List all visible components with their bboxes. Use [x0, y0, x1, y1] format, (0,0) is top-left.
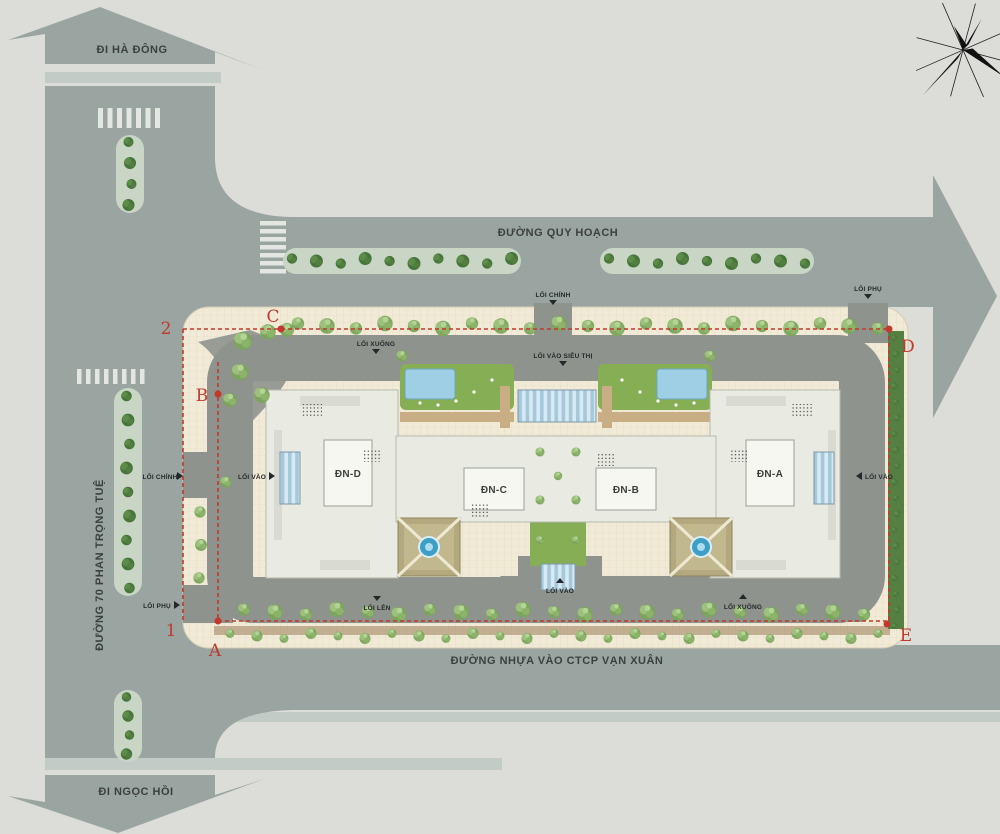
- tree-icon: [858, 608, 870, 620]
- tree-icon: [124, 439, 135, 450]
- tree-icon: [124, 583, 135, 594]
- tree-icon: [676, 252, 689, 265]
- canopy-east: [814, 452, 834, 504]
- tree-icon: [895, 367, 901, 373]
- tree-icon: [774, 255, 787, 268]
- marker-b: B: [196, 386, 209, 406]
- tree-icon: [319, 318, 334, 333]
- tree-icon: [627, 255, 640, 268]
- tree-icon: [226, 629, 235, 638]
- road-label-phan-trong-tue: ĐƯỜNG 70 PHAN TRỌNG TUỆ: [93, 479, 106, 651]
- tree-icon: [195, 539, 207, 551]
- tree-icon: [658, 632, 667, 641]
- driveway-entry-main-left: [183, 452, 237, 498]
- tree-icon: [121, 748, 132, 759]
- tree-icon: [305, 628, 316, 639]
- tree-icon: [667, 318, 682, 333]
- tree-icon: [238, 603, 250, 615]
- tree-icon: [408, 257, 421, 270]
- tree-icon: [893, 495, 899, 501]
- tree-icon: [893, 351, 900, 358]
- tree-icon: [582, 320, 594, 332]
- tree-icon: [895, 463, 901, 469]
- tree-icon: [825, 604, 840, 619]
- tree-icon: [800, 258, 810, 268]
- tree-icon: [456, 255, 469, 268]
- site-plan-canvas: ĐN-D ĐN-A ĐN-C ĐN-B: [0, 0, 1000, 834]
- tree-icon: [384, 256, 394, 266]
- label-dn-c: ĐN-C: [481, 485, 507, 496]
- tree-icon: [702, 256, 712, 266]
- tree-icon: [571, 447, 580, 456]
- tree-icon: [486, 608, 498, 620]
- tree-icon: [122, 558, 135, 571]
- direction-label-ngoc-hoi: ĐI NGỌC HỒI: [98, 785, 173, 798]
- tree-icon: [232, 364, 249, 381]
- tree-icon: [874, 629, 883, 638]
- tree-icon: [704, 350, 715, 361]
- marker-c: C: [266, 307, 279, 327]
- tree-icon: [336, 258, 346, 268]
- tree-icon: [725, 257, 738, 270]
- tree-icon: [893, 399, 899, 405]
- pool-right: [657, 369, 707, 399]
- tree-icon: [123, 137, 133, 147]
- tree-icon: [251, 630, 262, 641]
- tree-icon: [122, 710, 133, 721]
- tree-icon: [893, 543, 900, 550]
- tree-icon: [894, 415, 901, 422]
- tree-icon: [496, 632, 505, 641]
- tree-icon: [535, 447, 544, 456]
- tree-icon: [766, 634, 775, 643]
- tree-icon: [895, 559, 901, 565]
- tree-icon: [453, 604, 468, 619]
- tree-icon: [521, 633, 532, 644]
- tree-icon: [424, 603, 436, 615]
- tree-icon: [408, 320, 420, 332]
- tree-icon: [267, 604, 282, 619]
- tree-icon: [640, 317, 652, 329]
- tree-icon: [814, 317, 826, 329]
- tree-icon: [287, 253, 297, 263]
- tree-icon: [820, 632, 829, 641]
- tree-icon: [737, 630, 748, 641]
- marker-2: 2: [161, 319, 172, 339]
- tree-icon: [122, 414, 135, 427]
- marker-a: A: [208, 641, 222, 661]
- direction-label-ha-dong: ĐI HÀ ĐÔNG: [97, 43, 168, 56]
- label-dn-a: ĐN-A: [757, 469, 783, 480]
- tree-icon: [467, 628, 478, 639]
- tree-icon: [604, 634, 613, 643]
- tree-icon: [515, 602, 530, 617]
- tree-icon: [763, 607, 778, 622]
- marker-dot-e: [884, 621, 891, 628]
- road-label-quy-hoach: ĐƯỜNG QUY HOẠCH: [498, 226, 619, 239]
- marker-d: D: [901, 337, 915, 357]
- tree-icon: [535, 495, 544, 504]
- tree-icon: [123, 510, 136, 523]
- tree-icon: [575, 630, 586, 641]
- tree-icon: [548, 606, 560, 618]
- site-plan: ĐN-D ĐN-A ĐN-C ĐN-B: [0, 0, 1000, 834]
- tree-icon: [220, 476, 231, 487]
- tree-icon: [701, 602, 716, 617]
- tree-icon: [505, 252, 518, 265]
- road-label-nhua-van-xuan: ĐƯỜNG NHỰA VÀO CTCP VẠN XUÂN: [451, 654, 664, 667]
- tree-icon: [292, 317, 304, 329]
- label-dn-b: ĐN-B: [613, 485, 639, 496]
- tree-icon: [482, 258, 492, 268]
- tree-icon: [126, 179, 136, 189]
- tree-icon: [125, 730, 134, 739]
- tree-icon: [604, 253, 614, 263]
- tree-icon: [653, 258, 663, 268]
- tree-icon: [610, 603, 622, 615]
- tree-icon: [234, 332, 252, 350]
- tree-icon: [683, 633, 694, 644]
- tree-icon: [254, 387, 269, 402]
- tree-icon: [359, 252, 372, 265]
- marker-dot-b: [215, 391, 222, 398]
- tree-icon: [751, 253, 761, 263]
- canopy-west: [280, 452, 300, 504]
- tree-icon: [122, 692, 131, 701]
- fountain-garden-east: [670, 518, 732, 576]
- tree-icon: [672, 608, 684, 620]
- tree-icon: [329, 602, 344, 617]
- tree-icon: [223, 393, 237, 407]
- tree-icon: [193, 572, 204, 583]
- tree-icon: [796, 603, 808, 615]
- tree-icon: [845, 633, 856, 644]
- tree-icon: [442, 634, 451, 643]
- tree-icon: [894, 511, 901, 518]
- driveway-entry-secondary-left: [183, 585, 233, 623]
- tree-icon: [466, 317, 478, 329]
- tree-icon: [892, 431, 898, 437]
- tree-icon: [892, 527, 898, 533]
- tree-icon: [433, 253, 443, 263]
- tree-icon: [124, 157, 136, 169]
- tree-icon: [121, 391, 132, 402]
- tree-icon: [536, 536, 544, 544]
- tree-icon: [892, 623, 898, 629]
- tree-icon: [893, 447, 900, 454]
- tree-icon: [756, 320, 768, 332]
- canopy-south: [541, 564, 575, 590]
- tree-icon: [577, 607, 592, 622]
- marker-e: E: [900, 626, 912, 646]
- tree-icon: [413, 630, 424, 641]
- tree-icon: [120, 462, 133, 475]
- tree-icon: [639, 604, 654, 619]
- tree-icon: [891, 575, 898, 582]
- tree-icon: [359, 633, 370, 644]
- tree-icon: [712, 629, 721, 638]
- marker-dot-d: [886, 326, 893, 333]
- tree-icon: [391, 607, 406, 622]
- tree-icon: [194, 506, 205, 517]
- marker-1: 1: [166, 621, 177, 641]
- tree-icon: [894, 607, 901, 614]
- tree-icon: [572, 536, 580, 544]
- tree-icon: [571, 495, 580, 504]
- tree-icon: [841, 318, 856, 333]
- tree-icon: [310, 255, 323, 268]
- tree-icon: [629, 628, 640, 639]
- tree-icon: [122, 199, 134, 211]
- tree-icon: [123, 487, 134, 498]
- tree-icon: [334, 632, 343, 641]
- tree-icon: [396, 350, 407, 361]
- tree-icon: [280, 634, 289, 643]
- tree-icon: [891, 383, 898, 390]
- tree-icon: [388, 629, 397, 638]
- tree-icon: [300, 608, 312, 620]
- fountain-garden-west: [398, 518, 460, 576]
- tree-icon: [893, 591, 899, 597]
- tree-icon: [121, 535, 132, 546]
- tree-icon: [493, 318, 508, 333]
- label-dn-d: ĐN-D: [335, 469, 361, 480]
- tree-icon: [550, 629, 559, 638]
- tree-icon: [554, 472, 562, 480]
- tree-icon: [892, 335, 898, 341]
- canopy-main: [518, 390, 596, 422]
- tree-icon: [791, 628, 802, 639]
- pool-left: [405, 369, 455, 399]
- marker-dot-a: [215, 618, 222, 625]
